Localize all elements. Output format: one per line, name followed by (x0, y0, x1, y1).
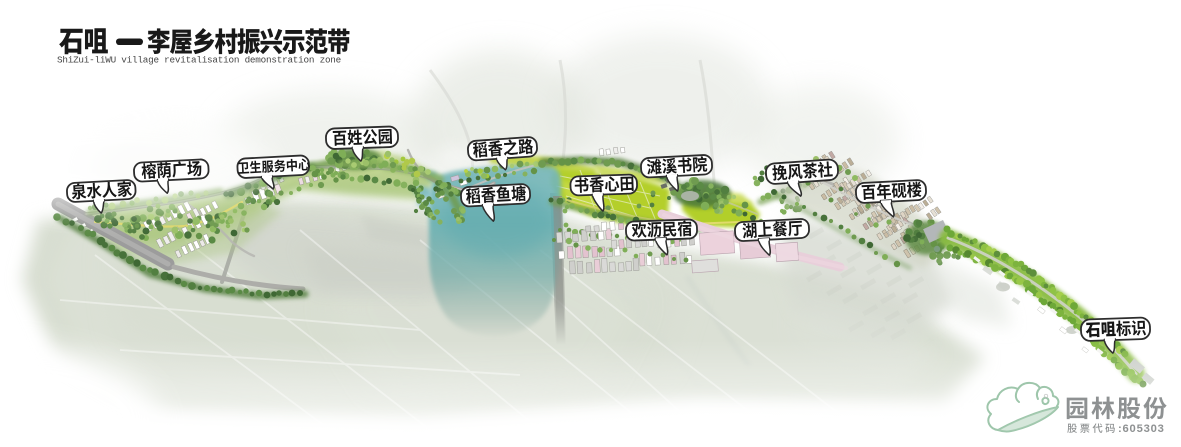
svg-text:ShiZui-liWU village revitalisa: ShiZui-liWU village revitalisation demon… (57, 55, 341, 66)
svg-text::605303: :605303 (1118, 423, 1165, 435)
